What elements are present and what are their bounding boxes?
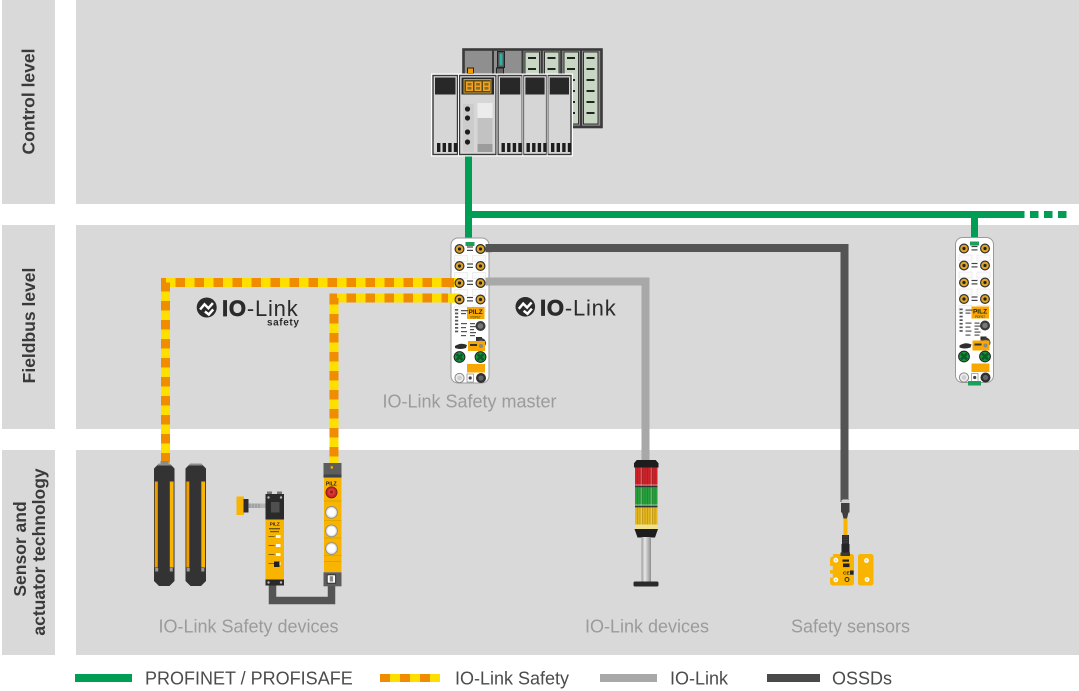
svg-text:CE: CE <box>843 571 850 577</box>
svg-text:actuator technology: actuator technology <box>29 468 49 636</box>
svg-text:Safety sensors: Safety sensors <box>791 617 910 637</box>
svg-text:IO-Link: IO-Link <box>540 295 617 320</box>
svg-text:Sensor and: Sensor and <box>10 501 30 596</box>
svg-text:PROFINET / PROFISAFE: PROFINET / PROFISAFE <box>145 669 353 689</box>
svg-text:Control level: Control level <box>19 49 39 155</box>
svg-text:IO-Link Safety devices: IO-Link Safety devices <box>158 617 338 637</box>
svg-text:IO-Link: IO-Link <box>670 669 729 689</box>
svg-text:OSSDs: OSSDs <box>832 669 892 689</box>
svg-text:IO-Link Safety: IO-Link Safety <box>455 669 569 689</box>
svg-text:IO-Link devices: IO-Link devices <box>585 617 709 637</box>
svg-text:PILZ: PILZ <box>270 522 280 527</box>
svg-text:IO-Link Safety master: IO-Link Safety master <box>382 392 556 412</box>
svg-text:Fieldbus level: Fieldbus level <box>19 268 39 384</box>
svg-text:safety: safety <box>267 318 300 329</box>
